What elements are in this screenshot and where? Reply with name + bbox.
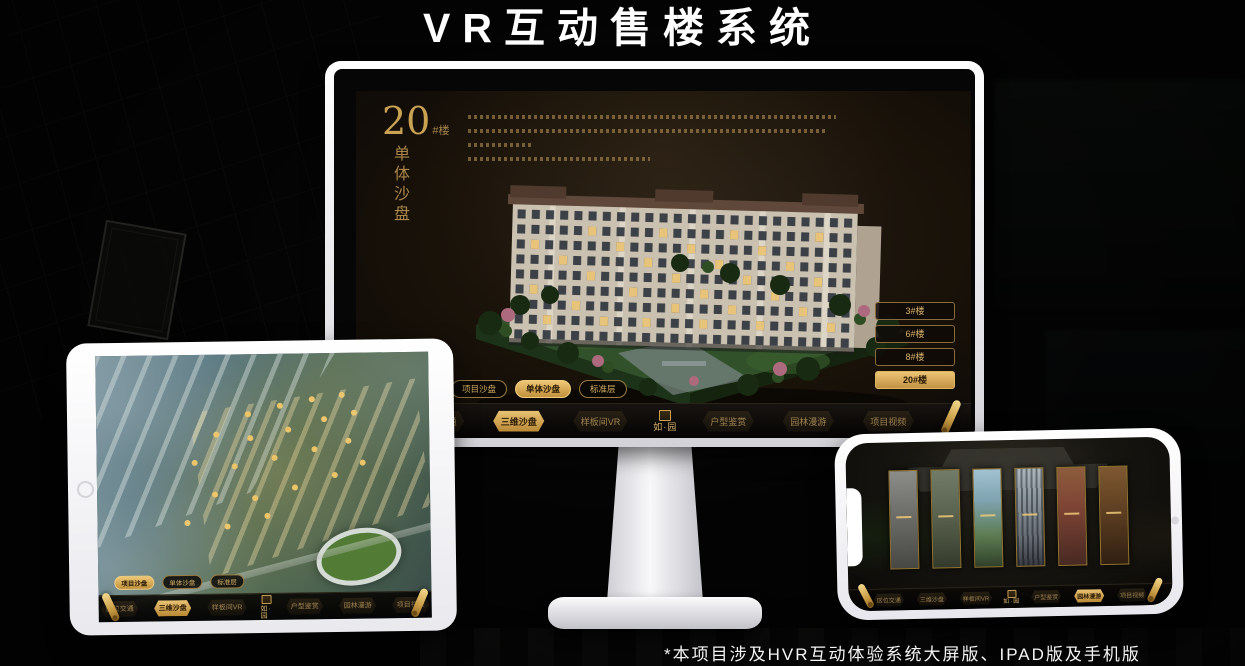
intro-text-line xyxy=(468,129,828,133)
mode-tab[interactable]: 项目沙盘 xyxy=(114,576,154,591)
gallery-strip[interactable] xyxy=(1098,466,1129,566)
brand-logo: 如·园 xyxy=(653,410,677,432)
building-number: 20 xyxy=(382,99,430,143)
heading-subtitle-vertical: 单体沙盘 xyxy=(388,145,412,245)
mode-tab[interactable]: 标准层 xyxy=(579,380,627,398)
seal-icon xyxy=(659,410,671,421)
building-button[interactable]: 20#楼 xyxy=(875,371,955,389)
tablet-mode-tabs: 项目沙盘单体沙盘标准层 xyxy=(114,574,244,590)
gallery-strip[interactable] xyxy=(1014,467,1045,567)
menu-item[interactable]: 项目视频 xyxy=(859,411,917,432)
brand-logo: 如·园 xyxy=(260,594,273,619)
mode-tab[interactable]: 项目沙盘 xyxy=(451,380,507,398)
monitor-stand-neck xyxy=(607,446,703,602)
menu-item[interactable]: 户型鉴赏 xyxy=(699,411,757,432)
footnote-caption: *本项目涉及HVR互动体验系统大屏版、IPAD版及手机版 xyxy=(664,640,1141,665)
mode-tab[interactable]: 单体沙盘 xyxy=(162,575,202,590)
phone-notch xyxy=(846,488,863,566)
mode-tab[interactable]: 单体沙盘 xyxy=(515,380,571,398)
menu-item[interactable]: 三维沙盘 xyxy=(915,592,949,606)
building-heading: 20#楼 单体沙盘 xyxy=(382,101,449,245)
mode-tab[interactable]: 标准层 xyxy=(210,574,244,588)
building-button[interactable]: 3#楼 xyxy=(875,302,955,320)
menu-item[interactable]: 样板间VR xyxy=(570,411,632,432)
logo-text: 如·园 xyxy=(1003,599,1020,605)
building-number-suffix: #楼 xyxy=(432,125,449,137)
sandbox-mode-tabs: 项目沙盘单体沙盘标准层 xyxy=(451,380,627,398)
logo-text: 如·园 xyxy=(653,423,677,432)
intro-text-line xyxy=(468,115,836,119)
intro-text-line xyxy=(468,143,534,147)
building-button[interactable]: 8#楼 xyxy=(875,348,955,366)
menu-item[interactable]: 区位交通 xyxy=(872,593,906,607)
menu-item[interactable]: 样板间VR xyxy=(958,591,995,605)
menu-item[interactable]: 户型鉴赏 xyxy=(284,598,326,615)
menu-item[interactable]: 园林漫游 xyxy=(1072,589,1106,603)
promo-composite: VR互动售楼系统 20#楼 单体沙盘 xyxy=(0,0,1245,666)
monitor-stand-base xyxy=(548,597,762,629)
menu-item[interactable]: 项目视频 xyxy=(1115,588,1149,602)
page-title: VR互动售楼系统 xyxy=(0,0,1245,56)
menu-item[interactable]: 园林漫游 xyxy=(337,597,379,614)
gallery-strip[interactable] xyxy=(888,470,919,570)
tablet-screen: 项目沙盘单体沙盘标准层 区位交通三维沙盘样板间VR 如·园 户型鉴赏园林漫游项目… xyxy=(95,352,432,623)
building-button[interactable]: 6#楼 xyxy=(875,325,955,343)
gallery-strip[interactable] xyxy=(972,468,1003,568)
seal-icon xyxy=(1007,590,1016,598)
menu-item[interactable]: 户型鉴赏 xyxy=(1029,590,1063,604)
logo-text: 如·园 xyxy=(260,605,272,619)
brand-logo: 如·园 xyxy=(1003,590,1020,605)
seal-icon xyxy=(261,594,271,603)
building-selector: 3#楼6#楼8#楼20#楼 xyxy=(875,297,955,394)
menu-item[interactable]: 三维沙盘 xyxy=(152,600,194,617)
menu-item[interactable]: 样板间VR xyxy=(205,599,250,616)
gallery-strip[interactable] xyxy=(930,469,961,569)
gallery-strip[interactable] xyxy=(1056,466,1087,566)
panorama-gallery xyxy=(888,466,1129,570)
tablet-device: 项目沙盘单体沙盘标准层 区位交通三维沙盘样板间VR 如·园 户型鉴赏园林漫游项目… xyxy=(66,338,457,635)
menu-item[interactable]: 三维沙盘 xyxy=(490,411,548,432)
menu-item[interactable]: 园林漫游 xyxy=(779,411,837,432)
tablet-menu-bar: 区位交通三维沙盘样板间VR 如·园 户型鉴赏园林漫游项目视频 xyxy=(98,591,431,623)
phone-device: 区位交通三维沙盘样板间VR 如·园 户型鉴赏园林漫游项目视频 xyxy=(834,427,1184,620)
phone-screen: 区位交通三维沙盘样板间VR 如·园 户型鉴赏园林漫游项目视频 xyxy=(845,437,1172,612)
